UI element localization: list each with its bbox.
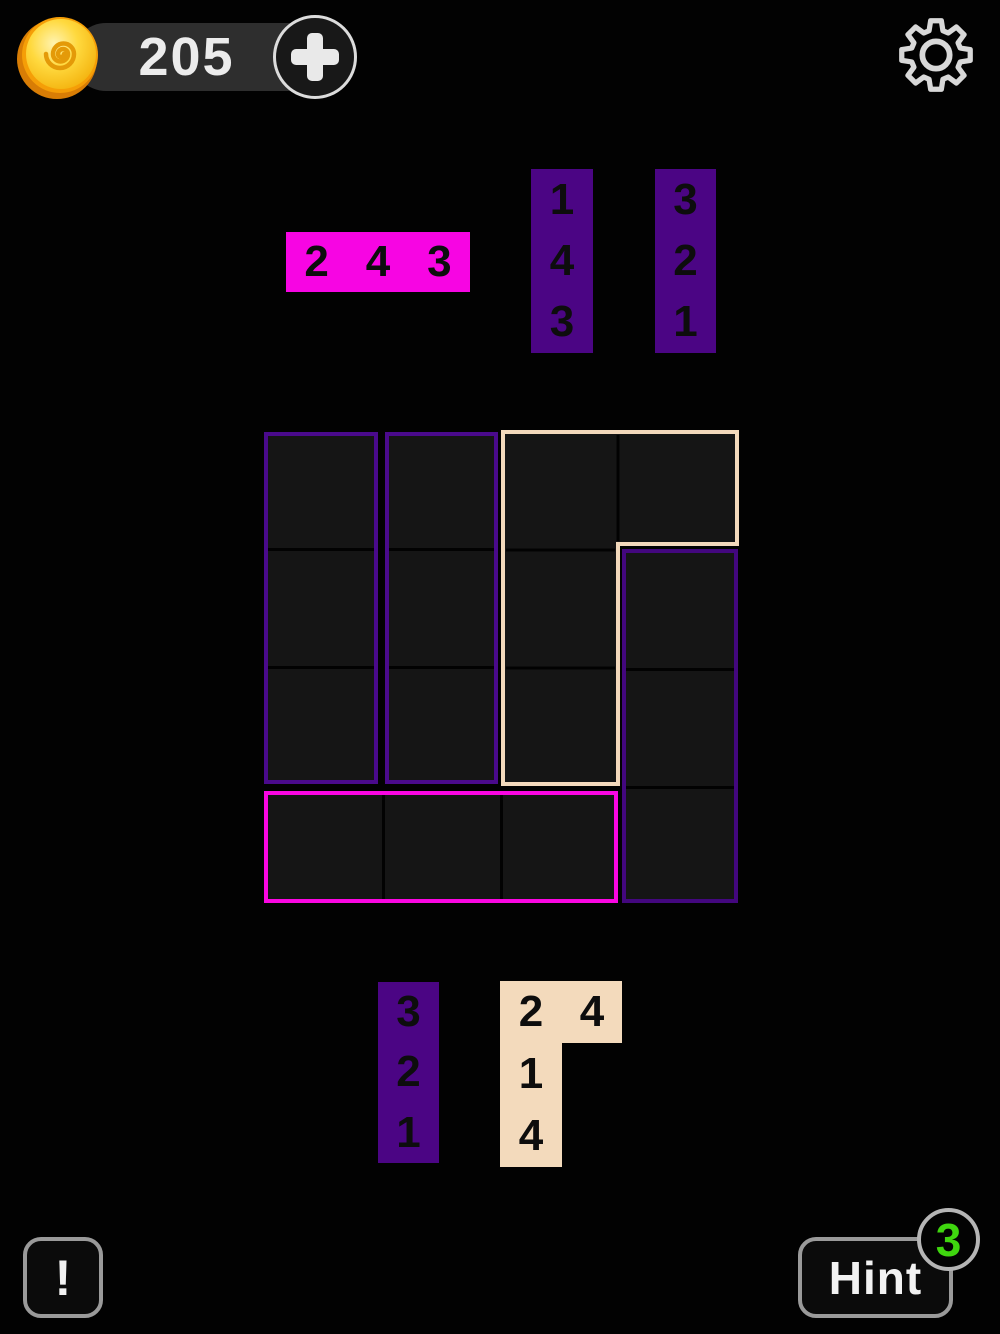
board-region-column-1[interactable] [264,432,378,784]
piece-1-4-3[interactable]: 1 4 3 [531,169,593,353]
piece-cell: 3 [378,982,439,1042]
piece-cell: 1 [500,1043,562,1105]
piece-cell: 4 [531,230,593,291]
piece-3-2-1-bottom[interactable]: 3 2 1 [378,982,439,1163]
board-region-column-2[interactable] [385,432,498,784]
coin-count: 205 [100,23,273,91]
piece-2-4-3[interactable]: 2 4 3 [286,232,470,292]
cell-divider [389,548,494,551]
piece-cell: 3 [531,292,593,353]
cell-divider [268,548,374,551]
add-coins-button[interactable] [273,15,357,99]
warning-button[interactable]: ! [23,1237,103,1318]
cell-divider [382,795,385,899]
piece-cell: 2 [378,1042,439,1102]
piece-cell: 2 [655,230,716,291]
piece-cell: 3 [655,169,716,230]
piece-cell: 4 [347,232,408,292]
cell-divider [626,786,734,789]
piece-cell: 1 [531,169,593,230]
game-screen: 205 2 4 3 1 4 3 3 2 1 [0,0,1000,1334]
gear-icon[interactable] [894,13,978,97]
cell-divider [626,668,734,671]
piece-cell: 4 [500,1105,562,1167]
piece-cell: 1 [378,1103,439,1163]
coin-icon [16,14,102,100]
piece-L-cream[interactable]: 2 4 1 4 [500,981,622,1167]
piece-cell: 3 [409,232,470,292]
piece-cell: 1 [655,292,716,353]
board-region-L-cream[interactable] [498,427,742,789]
piece-cell: 4 [562,981,622,1043]
piece-3-2-1-top[interactable]: 3 2 1 [655,169,716,353]
board-region-row-4[interactable] [264,791,618,903]
piece-cell: 2 [500,981,562,1043]
plus-icon [307,33,323,81]
board-region-column-4[interactable] [622,549,738,903]
cell-divider [500,795,503,899]
hint-count-badge: 3 [917,1208,980,1271]
cell-divider [268,666,374,669]
piece-cell: 2 [286,232,347,292]
cell-divider [389,666,494,669]
